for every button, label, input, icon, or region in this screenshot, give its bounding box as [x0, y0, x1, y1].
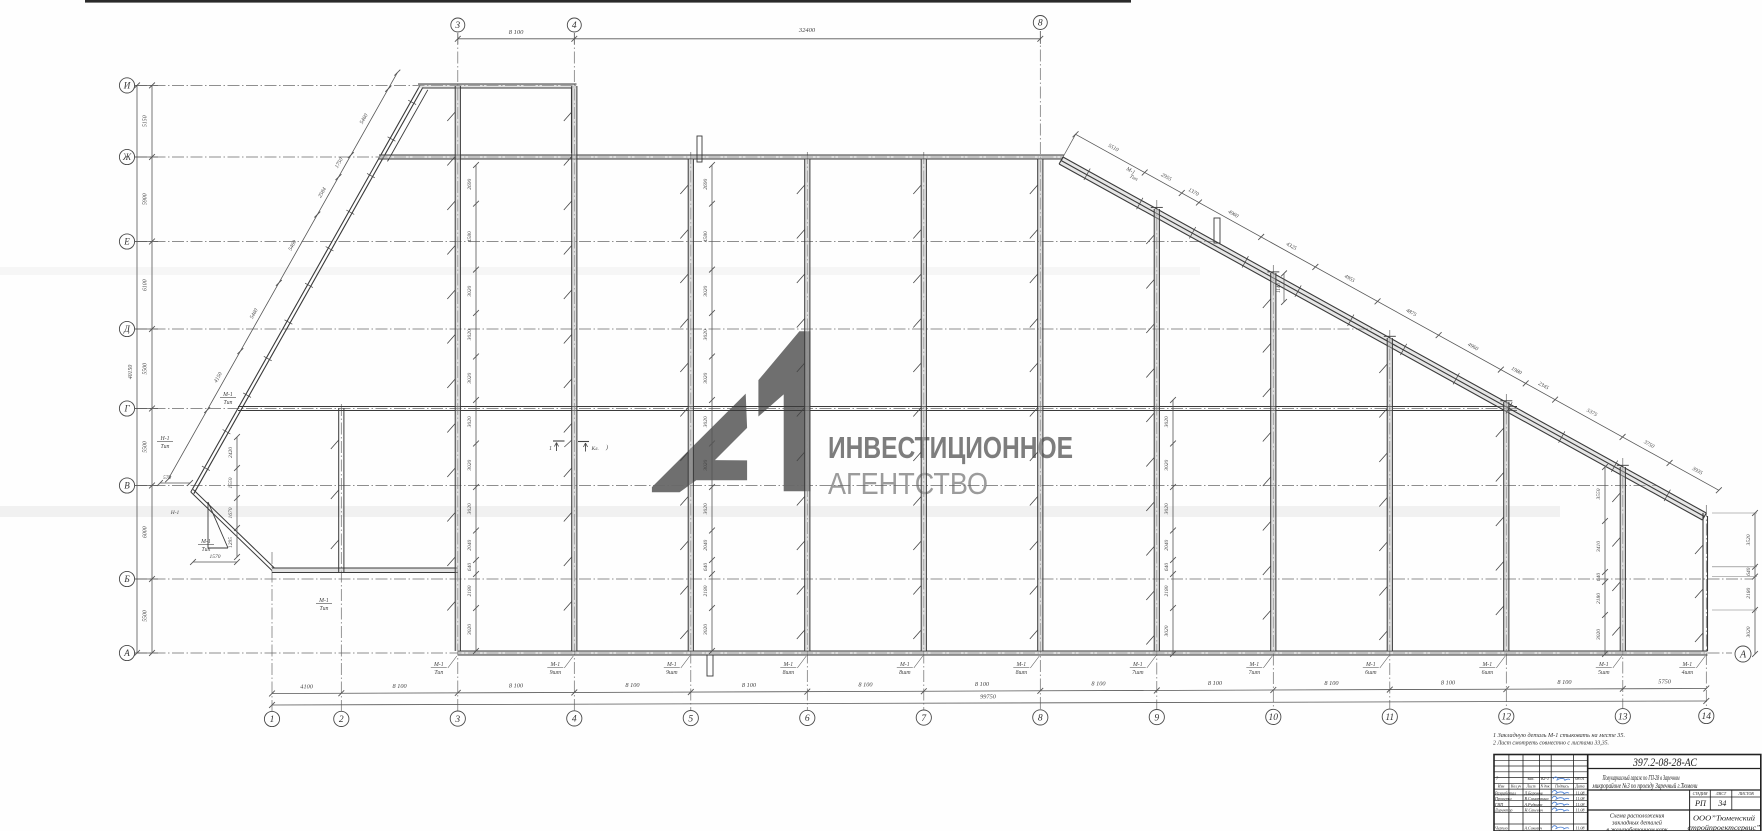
svg-text:6шт: 6шт	[1482, 670, 1493, 676]
svg-text:14: 14	[1702, 712, 1712, 722]
svg-text:Г: Г	[123, 404, 130, 414]
svg-text:1670: 1670	[228, 507, 234, 518]
svg-text:Подпись: Подпись	[1554, 785, 1569, 789]
svg-text:М-1: М-1	[222, 392, 233, 398]
svg-text:3020: 3020	[703, 416, 709, 428]
svg-text:И: И	[123, 81, 131, 91]
svg-text:Полукаркасный гараж по ГП-28 в: Полукаркасный гараж по ГП-28 в Заречном	[1602, 774, 1680, 782]
svg-text:08.01: 08.01	[1575, 776, 1584, 781]
svg-text:3020: 3020	[703, 372, 709, 384]
svg-text:8 100: 8 100	[858, 681, 873, 688]
svg-text:3020: 3020	[703, 459, 709, 471]
svg-text:5500: 5500	[143, 363, 149, 375]
svg-text:1550: 1550	[228, 477, 234, 488]
svg-text:М-1: М-1	[1015, 662, 1026, 668]
svg-text:): )	[605, 444, 608, 451]
svg-text:1570: 1570	[210, 554, 221, 560]
svg-text:8: 8	[1038, 714, 1043, 724]
svg-text:2690: 2690	[467, 179, 473, 190]
svg-text:М-1: М-1	[318, 598, 329, 604]
svg-text:4580: 4580	[466, 231, 473, 242]
svg-text:А.Рудкина: А.Рудкина	[1524, 802, 1543, 807]
svg-text:М-1: М-1	[1248, 662, 1259, 668]
svg-text:3550: 3550	[1596, 488, 1602, 500]
svg-text:6: 6	[805, 714, 810, 724]
svg-text:13: 13	[1618, 712, 1628, 722]
svg-text:640: 640	[702, 563, 709, 572]
svg-text:Н-1: Н-1	[170, 510, 180, 516]
svg-text:М-1: М-1	[782, 662, 793, 668]
svg-text:9шт: 9шт	[666, 670, 677, 676]
svg-text:5150: 5150	[143, 115, 149, 127]
svg-text:Кл.: Кл.	[591, 446, 599, 452]
svg-text:Черпло: Черпло	[1495, 826, 1508, 831]
svg-text:34: 34	[1717, 799, 1726, 808]
svg-text:закладных деталей: закладных деталей	[1611, 820, 1662, 827]
svg-text:8 100: 8 100	[1557, 679, 1572, 686]
svg-text:Проверил: Проверил	[1494, 796, 1512, 801]
svg-text:5500: 5500	[143, 441, 149, 453]
svg-text:9: 9	[1154, 713, 1159, 723]
svg-text:40150: 40150	[127, 365, 134, 380]
svg-text:3: 3	[454, 21, 460, 31]
svg-text:9шт: 9шт	[550, 670, 561, 676]
svg-text:640: 640	[1595, 573, 1602, 582]
svg-text:ГИП: ГИП	[1494, 802, 1504, 807]
svg-text:3020: 3020	[467, 624, 473, 636]
svg-text:6100: 6100	[143, 279, 149, 291]
svg-text:8 100: 8 100	[393, 683, 408, 690]
svg-text:3410: 3410	[1595, 541, 1602, 553]
svg-text:8 100: 8 100	[509, 29, 524, 36]
svg-text:2180: 2180	[1164, 585, 1170, 596]
svg-text:А: А	[1739, 649, 1747, 660]
svg-text:Ж: Ж	[122, 152, 132, 162]
svg-text:3020: 3020	[467, 459, 473, 471]
svg-text:3520: 3520	[1746, 534, 1752, 546]
svg-text:2420: 2420	[227, 447, 234, 458]
svg-text:микрорайоне №3 по проезду Заре: микрорайоне №3 по проезду Заречный г.Тюм…	[1592, 782, 1698, 790]
svg-text:3020: 3020	[467, 329, 473, 341]
svg-text:М-1: М-1	[200, 539, 211, 545]
svg-text:Лист: Лист	[1526, 785, 1536, 789]
svg-text:11.08: 11.08	[1576, 802, 1585, 807]
svg-text:А.Сакевич: А.Сакевич	[1524, 826, 1543, 831]
svg-text:ООО”Тюменский: ООО”Тюменский	[1693, 815, 1756, 823]
svg-text:11.08: 11.08	[1576, 796, 1585, 801]
svg-text:1140: 1140	[1275, 283, 1282, 293]
svg-text:640: 640	[1745, 567, 1752, 576]
svg-text:8 100: 8 100	[975, 681, 990, 688]
svg-text:Изм: Изм	[1497, 785, 1505, 789]
svg-text:2 Лист смотреть совместно: 2 Лист смотреть совместно с листами 33,3…	[1493, 740, 1609, 747]
svg-text:2: 2	[339, 715, 344, 725]
svg-text:99750: 99750	[980, 694, 997, 701]
svg-text:1295: 1295	[228, 537, 234, 548]
svg-text:3020: 3020	[1164, 416, 1170, 428]
svg-text:10: 10	[1269, 713, 1279, 723]
svg-text:3: 3	[454, 715, 460, 725]
svg-text:32400: 32400	[798, 27, 816, 34]
svg-text:11: 11	[1385, 713, 1394, 723]
svg-text:Тип: Тип	[224, 400, 233, 406]
svg-text:3020: 3020	[467, 416, 473, 428]
svg-text:640: 640	[466, 563, 473, 572]
svg-text:5500: 5500	[143, 610, 149, 622]
svg-text:N док: N док	[1539, 785, 1549, 789]
svg-text:7шт: 7шт	[1132, 670, 1143, 676]
svg-text:ЛИСТОВ: ЛИСТОВ	[1737, 792, 1754, 796]
svg-text:М-1: М-1	[1365, 662, 1376, 668]
svg-text:Б: Б	[123, 574, 130, 584]
svg-text:Е: Е	[123, 237, 130, 247]
svg-text:4100: 4100	[300, 683, 313, 690]
svg-text:Тип: Тип	[434, 670, 443, 676]
svg-text:8 100: 8 100	[742, 682, 757, 689]
svg-text:М-1: М-1	[666, 662, 677, 668]
svg-text:РП: РП	[1694, 799, 1707, 808]
svg-text:1: 1	[270, 715, 275, 725]
svg-text:4: 4	[572, 715, 577, 725]
svg-text:11.08: 11.08	[1576, 826, 1585, 831]
svg-text:2180: 2180	[1596, 593, 1602, 604]
svg-text:5900: 5900	[143, 193, 149, 205]
svg-text:В: В	[124, 481, 130, 491]
svg-text:2040: 2040	[1163, 539, 1170, 550]
svg-text:2040: 2040	[466, 539, 473, 550]
svg-text:5шт: 5шт	[1598, 670, 1609, 676]
svg-text:Н.Сакевич: Н.Сакевич	[1524, 808, 1543, 813]
svg-text:ЛИСТ: ЛИСТ	[1715, 792, 1727, 796]
svg-text:СТАДИЯ: СТАДИЯ	[1693, 792, 1708, 796]
svg-text:11.08: 11.08	[1576, 808, 1585, 813]
svg-text:12: 12	[1502, 713, 1512, 723]
svg-text:6000: 6000	[143, 526, 149, 538]
svg-text:Д.Баронов: Д.Баронов	[1524, 790, 1543, 795]
svg-text:1 Закладную деталь М-1 сты: 1 Закладную деталь М-1 стыковать на мест…	[1493, 732, 1625, 739]
svg-text:8 100: 8 100	[625, 682, 640, 689]
svg-text:М-1: М-1	[1598, 662, 1609, 668]
svg-text:8шт: 8шт	[1016, 670, 1027, 676]
svg-text:Тип: Тип	[320, 606, 329, 612]
svg-text:3020: 3020	[467, 503, 473, 515]
svg-text:М-1: М-1	[1481, 662, 1492, 668]
svg-text:6шт: 6шт	[1365, 670, 1376, 676]
svg-text:8шт: 8шт	[899, 670, 910, 676]
svg-text:3020: 3020	[467, 372, 473, 384]
svg-text:8: 8	[1038, 19, 1043, 29]
svg-text:8 100: 8 100	[1208, 680, 1223, 687]
svg-text:5: 5	[688, 714, 693, 724]
svg-text:397.2-08-28-АС: 397.2-08-28-АС	[1632, 757, 1697, 769]
svg-text:М-1: М-1	[1681, 662, 1692, 668]
svg-text:В.Саматкина: В.Саматкина	[1525, 796, 1549, 801]
svg-text:А: А	[123, 648, 130, 658]
svg-text:М-1: М-1	[433, 662, 444, 668]
svg-text:ИНВЕСТИЦИОННОЕ: ИНВЕСТИЦИОННОЕ	[828, 430, 1073, 465]
svg-text:Разработал: Разработал	[1494, 790, 1516, 795]
svg-text:7шт: 7шт	[1249, 670, 1260, 676]
svg-text:АГЕНТСТВО: АГЕНТСТВО	[828, 466, 988, 501]
svg-text:2180: 2180	[467, 585, 473, 596]
svg-text:стройпроектсервис”: стройпроектсервис”	[1688, 824, 1761, 831]
svg-text:5750: 5750	[1658, 679, 1671, 686]
svg-text:2690: 2690	[703, 179, 709, 190]
svg-text:3020: 3020	[1164, 625, 1170, 637]
svg-text:Тип: Тип	[202, 547, 211, 553]
svg-text:640: 640	[1163, 563, 1170, 572]
svg-text:зак.: зак.	[1526, 776, 1534, 781]
svg-text:Кол.уч: Кол.уч	[1510, 785, 1521, 789]
svg-text:8 100: 8 100	[1091, 681, 1106, 688]
svg-text:3020: 3020	[1164, 459, 1170, 471]
svg-text:4: 4	[572, 21, 577, 31]
svg-text:М-1: М-1	[549, 662, 560, 668]
svg-text:8 100: 8 100	[1441, 679, 1456, 686]
svg-text:3020: 3020	[703, 286, 709, 298]
svg-text:Дата: Дата	[1574, 785, 1584, 789]
svg-text:М-1: М-1	[1132, 662, 1143, 668]
svg-text:8 100: 8 100	[509, 683, 524, 690]
svg-text:3020: 3020	[1596, 629, 1602, 641]
svg-text:М-1: М-1	[899, 662, 910, 668]
svg-text:2180: 2180	[1746, 588, 1752, 599]
svg-text:2180: 2180	[703, 585, 709, 596]
svg-text:11.08: 11.08	[1576, 790, 1585, 795]
svg-text:3020: 3020	[1164, 503, 1170, 515]
svg-text:4580: 4580	[702, 231, 709, 242]
svg-text:Схема расположения: Схема расположения	[1610, 814, 1665, 820]
svg-text:Н-1: Н-1	[159, 436, 169, 442]
svg-text:3020: 3020	[703, 503, 709, 515]
svg-text:2040: 2040	[702, 539, 709, 550]
svg-text:Директор: Директор	[1494, 808, 1512, 813]
svg-text:3020: 3020	[1746, 626, 1752, 638]
svg-text:82-1: 82-1	[1541, 776, 1549, 781]
svg-text:8шт: 8шт	[783, 670, 794, 676]
svg-text:3020: 3020	[703, 624, 709, 636]
svg-text:Тип: Тип	[161, 444, 170, 450]
svg-text:4шт: 4шт	[1682, 669, 1693, 676]
svg-text:3020: 3020	[467, 286, 473, 298]
svg-text:8 100: 8 100	[1324, 680, 1339, 687]
svg-text:1: 1	[549, 446, 552, 452]
svg-text:в железобетонном карк: в железобетонном карк	[1606, 827, 1667, 831]
svg-text:3020: 3020	[703, 329, 709, 341]
